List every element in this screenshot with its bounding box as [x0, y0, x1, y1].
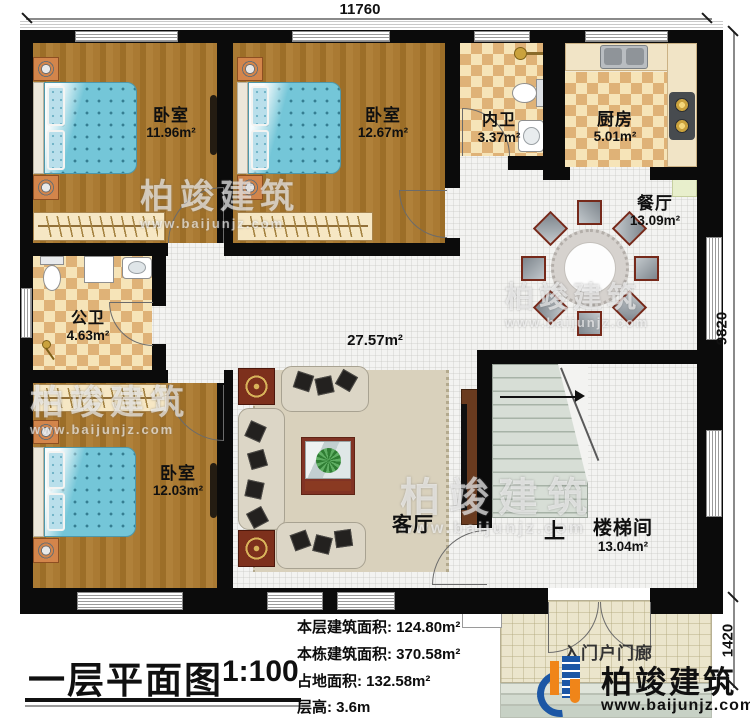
- toilet-icon: [512, 83, 537, 103]
- pillow: [47, 451, 65, 489]
- wall-kitchen-bottom-left: [543, 167, 570, 180]
- exterior-pad: [462, 612, 502, 628]
- room-name: 客厅: [368, 514, 458, 536]
- room-name: 餐厅: [605, 194, 705, 213]
- shower-rod: [527, 52, 543, 55]
- watermark-brand: 柏竣建筑: [400, 478, 596, 518]
- dimension-line-top: [26, 18, 712, 20]
- watermark: 柏竣建筑 www.baijunjz.com: [140, 180, 300, 230]
- room-name: 公卫: [42, 310, 134, 328]
- burner: [675, 119, 689, 133]
- coffee-table-shelf: [305, 481, 351, 491]
- room-name: 内卫: [453, 112, 545, 130]
- page-title: 一层平面图: [28, 650, 223, 704]
- up-text: 上: [540, 520, 570, 544]
- room-label-inner-bath: 内卫 3.37m²: [453, 112, 545, 145]
- window: [77, 592, 183, 610]
- end-table: [238, 530, 275, 567]
- logo-brand-text: 柏竣建筑: [601, 657, 737, 702]
- watermark: 柏竣建筑 www.baijunjz.com: [505, 284, 649, 329]
- watermark-url: www.baijunjz.com: [30, 423, 190, 436]
- toilet-icon: [43, 265, 61, 291]
- room-name: 厨房: [565, 110, 665, 129]
- basin-bowl: [128, 261, 146, 274]
- potted-plant-icon: [316, 448, 341, 473]
- pillow: [251, 130, 269, 170]
- logo-swoosh-icon: [528, 662, 593, 727]
- brand-logo: 柏竣建筑 www.baijunjz.com: [535, 653, 747, 723]
- room-area: 3.37m²: [453, 130, 545, 145]
- wall-dining-stair: [477, 350, 723, 364]
- watermark-brand: 柏竣建筑: [505, 284, 649, 313]
- window: [75, 31, 178, 42]
- logo-j-icon: [570, 679, 580, 703]
- room-label-kitchen: 厨房 5.01m²: [565, 110, 665, 144]
- wall-bottom-right: [650, 588, 723, 614]
- living-area-label: 27.57m²: [320, 333, 430, 350]
- wall-bedroom3-top: [20, 370, 168, 383]
- room-area: 4.63m²: [42, 328, 134, 343]
- pillow: [251, 86, 269, 126]
- window: [474, 31, 530, 42]
- wall-bedroom1-bottom: [20, 243, 168, 256]
- wall-bedroom3-top-stub: [224, 370, 233, 383]
- wall-bath-kitchen: [543, 43, 565, 180]
- sink-basin: [604, 48, 622, 65]
- bed-headboard: [33, 82, 44, 174]
- window: [585, 31, 668, 42]
- scale-label: 1:100: [222, 655, 299, 689]
- info-building-area: 本栋建筑面积: 370.58m²: [297, 643, 460, 664]
- title-underline-thin: [25, 705, 301, 707]
- window: [337, 592, 395, 610]
- room-label-living: 客厅: [368, 514, 458, 536]
- sofa-pillow: [334, 529, 353, 548]
- floor-plan-canvas: 柏竣建筑 www.baijunjz.com 柏竣建筑 www.baijunjz.…: [0, 0, 750, 728]
- room-name: 卧室: [333, 106, 433, 125]
- room-name: 楼梯间: [568, 518, 678, 539]
- dining-chair: [577, 200, 602, 225]
- wall-publicbath-right-lower: [152, 344, 166, 370]
- stair-arrow-head: [575, 390, 585, 402]
- room-label-bedroom-tl: 卧室 11.96m²: [121, 106, 221, 140]
- bath-cabinet: [84, 256, 114, 283]
- dimension-right-main: 9820: [714, 299, 731, 359]
- dining-chair: [634, 256, 659, 281]
- room-area: 12.67m²: [333, 125, 433, 140]
- info-floor-area: 本层建筑面积: 124.80m²: [297, 616, 460, 637]
- room-area: 5.01m²: [565, 129, 665, 144]
- room-area: 27.57m²: [320, 333, 430, 350]
- stair-up-label: 上: [540, 520, 570, 544]
- pillow: [47, 130, 65, 170]
- watermark-url: www.baijunjz.com: [140, 217, 300, 230]
- burner: [675, 98, 689, 112]
- room-area: 12.03m²: [128, 483, 228, 498]
- room-name: 卧室: [128, 464, 228, 483]
- room-area: 13.09m²: [605, 213, 705, 228]
- dimension-top: 11760: [320, 1, 400, 18]
- end-table: [238, 368, 275, 405]
- nightstand: [33, 175, 59, 200]
- watermark-url: www.baijunjz.com: [505, 316, 649, 329]
- room-label-bedroom-bl: 卧室 12.03m²: [128, 464, 228, 498]
- watermark: 柏竣建筑 www.baijunjz.com: [30, 386, 190, 436]
- bed-headboard: [33, 447, 44, 537]
- title-underline: [25, 698, 301, 702]
- dining-chair: [521, 256, 546, 281]
- room-label-public-bath: 公卫 4.63m²: [42, 310, 134, 343]
- pillow: [47, 86, 65, 126]
- exterior-sill-band: [20, 19, 723, 30]
- wall-kitchen-bottom-right: [650, 167, 723, 180]
- window: [21, 288, 32, 338]
- sofa-pillow: [244, 479, 264, 499]
- sofa-pillow: [314, 375, 334, 395]
- stair-arrow-line: [500, 396, 576, 398]
- wall-publicbath-right-upper: [152, 256, 166, 306]
- watermark-brand: 柏竣建筑: [140, 180, 300, 214]
- room-area: 11.96m²: [121, 125, 221, 140]
- info-storey-height: 层高: 3.6m: [297, 696, 370, 717]
- shower-head-icon: [514, 47, 527, 60]
- nightstand: [33, 538, 59, 563]
- logo-building-orange-icon: [550, 661, 559, 695]
- bed-headboard: [237, 82, 248, 174]
- room-area: 13.04m²: [568, 539, 678, 554]
- window: [706, 430, 722, 517]
- window: [292, 31, 390, 42]
- nightstand: [33, 57, 59, 81]
- wall-innerbath-bottom: [508, 156, 543, 170]
- pillow: [47, 493, 65, 531]
- dimension-line-right: [733, 32, 735, 688]
- sink-basin: [626, 48, 644, 65]
- room-label-dining: 餐厅 13.09m²: [605, 194, 705, 228]
- logo-url-text: www.baijunjz.com: [601, 697, 750, 715]
- wall-bedroom2-bottom: [224, 243, 460, 256]
- info-footprint-area: 占地面积: 132.58m²: [297, 670, 430, 691]
- nightstand: [237, 57, 263, 81]
- toilet-tank: [40, 256, 64, 265]
- room-label-stairwell: 楼梯间 13.04m²: [568, 518, 678, 554]
- room-label-bedroom-tm: 卧室 12.67m²: [333, 106, 433, 140]
- window: [267, 592, 323, 610]
- room-name: 卧室: [121, 106, 221, 125]
- watermark-brand: 柏竣建筑: [30, 386, 190, 420]
